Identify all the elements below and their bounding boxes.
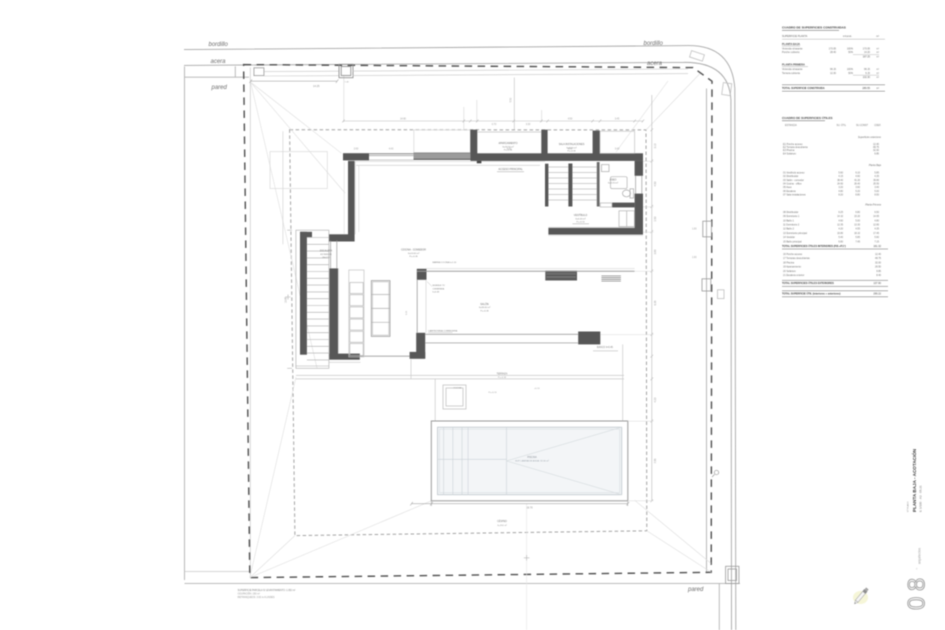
svg-text:m²: m² <box>876 87 879 90</box>
svg-text:18 Piscina: 18 Piscina <box>783 261 795 264</box>
svg-text:3.10: 3.10 <box>654 143 657 148</box>
svg-text:Vivienda s/rasante: Vivienda s/rasante <box>782 47 803 50</box>
svg-text:1.00: 1.00 <box>692 229 697 231</box>
svg-text:16 Porche acceso: 16 Porche acceso <box>783 253 803 256</box>
svg-text:E4 Solárium: E4 Solárium <box>783 152 796 155</box>
svg-text:TOTAL SUPERFICIES ÚTILES INTER: TOTAL SUPERFICIES ÚTILES INTERIORES (P.B… <box>782 244 846 248</box>
svg-text:5.00: 5.00 <box>856 220 861 222</box>
svg-text:Porche cubierto: Porche cubierto <box>782 51 800 54</box>
svg-text:9.85: 9.85 <box>876 270 881 273</box>
svg-text:bordillo: bordillo <box>209 42 229 48</box>
svg-text:09 Dormitorio 1: 09 Dormitorio 1 <box>783 215 800 218</box>
svg-text:17 Terrazas descubiertas: 17 Terrazas descubiertas <box>783 257 810 260</box>
svg-text:CUADRO DE SUPERFICIES ÚTILES: CUADRO DE SUPERFICIES ÚTILES <box>782 115 833 120</box>
svg-text:11 Dormitorio 2: 11 Dormitorio 2 <box>783 224 800 227</box>
svg-text:1.00: 1.00 <box>692 257 697 259</box>
svg-text:12.30: 12.30 <box>830 72 837 75</box>
svg-text:4.15: 4.15 <box>839 176 844 178</box>
svg-text:CARPINTERÍA CORREDERA: CARPINTERÍA CORREDERA <box>428 330 458 333</box>
svg-text:24.60: 24.60 <box>837 184 843 186</box>
svg-text:P=+0.45: P=+0.45 <box>409 256 418 258</box>
svg-text:06 Escalera: 06 Escalera <box>783 190 796 193</box>
svg-text:05 Aseo: 05 Aseo <box>783 186 792 189</box>
svg-text:6.80: 6.80 <box>856 212 861 214</box>
svg-text:Nº PLANO: Nº PLANO <box>907 501 910 512</box>
svg-text:ESCALERA: ESCALERA <box>320 250 333 253</box>
svg-text:4.43: 4.43 <box>389 149 394 151</box>
svg-text:14.65: 14.65 <box>873 216 879 218</box>
svg-text:14.20: 14.20 <box>864 51 871 54</box>
svg-text:3.90: 3.90 <box>654 249 657 254</box>
svg-text:9.85: 9.85 <box>874 152 879 155</box>
svg-text:13 Dormitorio principal: 13 Dormitorio principal <box>783 232 807 235</box>
svg-text:5.85: 5.85 <box>875 172 880 174</box>
svg-text:m²: m² <box>876 76 879 79</box>
svg-text:SU. ÚTIL: SU. ÚTIL <box>837 124 847 127</box>
svg-text:289.55: 289.55 <box>862 87 870 90</box>
svg-text:299.22: 299.22 <box>873 292 881 295</box>
svg-text:17.45: 17.45 <box>873 233 879 235</box>
svg-text:pared: pared <box>687 587 704 593</box>
svg-text:m²: m² <box>876 47 879 50</box>
svg-text:VESTÍBULO: VESTÍBULO <box>574 214 588 217</box>
svg-text:PLANTA BAJA - ACOTACIÓN: PLANTA BAJA - ACOTACIÓN <box>910 448 917 512</box>
svg-text:PISCINA: PISCINA <box>527 456 537 459</box>
svg-text:P=+0.45: P=+0.45 <box>480 310 489 312</box>
svg-text:TOTAL SUPERFICIE ÚTIL (interio: TOTAL SUPERFICIE ÚTIL (interiores + exte… <box>782 292 841 295</box>
svg-text:SU.CONST: SU.CONST <box>856 125 868 127</box>
svg-text:19.70: 19.70 <box>526 506 533 509</box>
svg-text:173.05: 173.05 <box>863 47 871 50</box>
svg-text:S=260 m²: S=260 m² <box>497 524 507 527</box>
svg-text:P=+0.15: P=+0.15 <box>488 392 497 394</box>
svg-text:6.42: 6.42 <box>507 149 512 151</box>
svg-text:2.50: 2.50 <box>654 216 657 221</box>
svg-text:CUADRO DE SUPERFICIES CONSTRUI: CUADRO DE SUPERFICIES CONSTRUIDAS <box>782 26 846 30</box>
svg-text:SALA INSTALACIONES: SALA INSTALACIONES <box>559 143 585 146</box>
svg-text:4.20: 4.20 <box>839 229 844 231</box>
svg-text:6.50: 6.50 <box>875 212 880 214</box>
svg-text:96.15: 96.15 <box>830 68 837 71</box>
svg-text:SUP. LÁMINA DE AGUA: 32.00 m²: SUP. LÁMINA DE AGUA: 32.00 m² <box>515 460 549 463</box>
svg-text:14.25: 14.25 <box>313 84 320 88</box>
svg-text:ASEO: ASEO <box>610 178 617 181</box>
svg-text:pared: pared <box>211 85 228 91</box>
svg-text:COCINA - COMEDOR: COCINA - COMEDOR <box>401 248 426 251</box>
svg-text:m²: m² <box>876 56 879 59</box>
svg-text:P=+0.10: P=+0.10 <box>576 221 585 223</box>
svg-text:187.25: 187.25 <box>863 56 871 59</box>
svg-text:39.80: 39.80 <box>873 180 879 182</box>
svg-text:bordillo: bordillo <box>644 41 664 47</box>
svg-text:01 Vestíbulo acceso: 01 Vestíbulo acceso <box>783 171 805 174</box>
svg-text:CÉSPED: CÉSPED <box>497 520 507 523</box>
svg-text:SUPERFICIE PARCELA S/ LEVANTAM: SUPERFICIE PARCELA S/ LEVANTAMIENTO: 1.0… <box>238 589 296 592</box>
svg-text:161.32: 161.32 <box>873 245 881 248</box>
svg-text:13.30: 13.30 <box>854 225 860 227</box>
svg-text:BARRA COCINA h=1.10: BARRA COCINA h=1.10 <box>433 261 458 264</box>
svg-text:02 Distribuidor: 02 Distribuidor <box>783 175 799 178</box>
svg-text:4.35: 4.35 <box>875 229 880 231</box>
svg-text:+0.15: +0.15 <box>534 388 540 390</box>
svg-text:OCUPACIÓN: 230 m²: OCUPACIÓN: 230 m² <box>238 592 260 595</box>
svg-text:TOTAL SUPERFICIE CONSTRUIDA: TOTAL SUPERFICIE CONSTRUIDA <box>782 86 825 90</box>
svg-text:0.70: 0.70 <box>492 124 497 126</box>
svg-text:m²: m² <box>876 68 879 71</box>
svg-text:173.05: 173.05 <box>829 47 837 50</box>
svg-text:20 Solárium: 20 Solárium <box>783 270 796 273</box>
svg-text:P=+0.30: P=+0.30 <box>498 377 507 379</box>
svg-text:5.40: 5.40 <box>839 237 844 239</box>
svg-text:Planta Baja: Planta Baja <box>869 164 882 167</box>
svg-text:7.45: 7.45 <box>856 241 861 243</box>
svg-text:07 Sala instalaciones: 07 Sala instalaciones <box>783 194 806 197</box>
svg-text:08 Distribuidor: 08 Distribuidor <box>783 211 799 214</box>
svg-text:3.43: 3.43 <box>615 149 620 151</box>
svg-text:3.45: 3.45 <box>615 118 620 120</box>
svg-text:12.40: 12.40 <box>875 253 882 256</box>
svg-text:5.85: 5.85 <box>856 237 861 239</box>
svg-text:4.35: 4.35 <box>875 176 880 178</box>
svg-text:m²const.: m²const. <box>843 35 853 38</box>
svg-text:7.15: 7.15 <box>875 241 880 243</box>
svg-text:SUPERFICIE PLANTA: SUPERFICIE PLANTA <box>782 35 808 38</box>
svg-text:12.35: 12.35 <box>837 225 843 227</box>
svg-text:4.55: 4.55 <box>856 229 861 231</box>
svg-text:6.35: 6.35 <box>654 300 657 305</box>
svg-text:04 Cocina - office: 04 Cocina - office <box>783 183 802 186</box>
svg-text:PLANTA PRIMERA: PLANTA PRIMERA <box>782 63 805 67</box>
svg-text:P=+0.00: P=+0.00 <box>567 151 576 153</box>
svg-text:6.15: 6.15 <box>865 72 870 75</box>
svg-text:5.60: 5.60 <box>875 237 880 239</box>
svg-text:4.50: 4.50 <box>568 118 573 120</box>
svg-text:6.10: 6.10 <box>856 172 861 174</box>
svg-text:CHIMENEA: CHIMENEA <box>433 287 445 290</box>
svg-text:15.20: 15.20 <box>854 216 860 218</box>
svg-text:15 Baño principal: 15 Baño principal <box>783 240 802 243</box>
svg-text:S=6.40 m²: S=6.40 m² <box>575 217 585 220</box>
svg-text:03 Salón - comedor: 03 Salón - comedor <box>783 179 804 182</box>
svg-text:4.60: 4.60 <box>856 176 861 178</box>
svg-text:4.80: 4.80 <box>875 220 880 222</box>
svg-text:8.40: 8.40 <box>876 274 881 277</box>
svg-text:26.40: 26.40 <box>854 184 860 186</box>
svg-text:Planta Primera: Planta Primera <box>865 203 881 206</box>
svg-text:SALÓN: SALÓN <box>480 303 489 306</box>
svg-text:S=38.40 m²: S=38.40 m² <box>479 306 491 309</box>
svg-text:Vivienda s/rasante: Vivienda s/rasante <box>782 68 803 71</box>
svg-text:21 Escalera exterior: 21 Escalera exterior <box>783 274 804 277</box>
svg-text:14 Vestidor: 14 Vestidor <box>783 236 795 239</box>
svg-text:acera: acera <box>647 61 663 67</box>
svg-text:m²: m² <box>876 51 879 54</box>
svg-text:32.00: 32.00 <box>875 261 882 264</box>
svg-text:Superficies exteriores: Superficies exteriores <box>858 136 882 139</box>
svg-text:3.20: 3.20 <box>839 187 844 189</box>
svg-text:7.95: 7.95 <box>654 458 657 463</box>
svg-text:EXTERIOR: EXTERIOR <box>320 254 332 256</box>
svg-text:S=3.20 m²: S=3.20 m² <box>608 182 618 185</box>
svg-text:m²: m² <box>876 35 879 38</box>
svg-text:4.20: 4.20 <box>654 397 657 402</box>
svg-text:28.40: 28.40 <box>830 51 837 54</box>
svg-text:Terraza cubierta: Terraza cubierta <box>782 72 801 75</box>
svg-text:100%: 100% <box>847 68 854 71</box>
svg-text:4.50: 4.50 <box>654 181 657 186</box>
svg-text:COEF.: COEF. <box>874 125 881 127</box>
svg-text:PLANTA BAJA: PLANTA BAJA <box>782 42 800 46</box>
svg-text:TOTAL SUPERFICIES ÚTILES EXTER: TOTAL SUPERFICIES ÚTILES EXTERIORES <box>782 282 834 285</box>
svg-text:26.50: 26.50 <box>875 266 882 269</box>
svg-text:DUCHA: DUCHA <box>454 386 462 389</box>
svg-text:16.80: 16.80 <box>837 233 843 235</box>
svg-text:2.60: 2.60 <box>354 149 359 151</box>
svg-text:6.90: 6.90 <box>839 241 844 243</box>
svg-text:8.20: 8.20 <box>839 195 844 197</box>
svg-text:18x17.5: 18x17.5 <box>322 257 331 259</box>
svg-text:12 Baño 2: 12 Baño 2 <box>783 228 795 231</box>
svg-text:4.60: 4.60 <box>839 220 844 222</box>
svg-text:10 Baño 1: 10 Baño 1 <box>783 219 795 222</box>
svg-text:12.80: 12.80 <box>873 225 879 227</box>
svg-text:acera: acera <box>211 59 227 65</box>
svg-text:25.50: 25.50 <box>873 184 879 186</box>
svg-text:102.30: 102.30 <box>863 76 871 79</box>
svg-text:arquitectos: arquitectos <box>918 548 922 564</box>
svg-text:14.10: 14.10 <box>837 216 843 218</box>
svg-text:38.40: 38.40 <box>837 180 843 182</box>
svg-text:96.15: 96.15 <box>864 68 871 71</box>
svg-text:137.90: 137.90 <box>873 282 881 285</box>
svg-text:5.00: 5.00 <box>875 191 880 193</box>
svg-text:08: 08 <box>904 572 931 610</box>
svg-text:4.80: 4.80 <box>839 191 844 193</box>
svg-text:6.25: 6.25 <box>839 212 844 214</box>
svg-text:E 1/100 · A3 · 05.21: E 1/100 · A3 · 05.21 <box>919 485 923 512</box>
svg-text:100%: 100% <box>847 47 854 50</box>
svg-text:ESTANCIA: ESTANCIA <box>785 124 797 127</box>
svg-text:3.60: 3.60 <box>856 187 861 189</box>
svg-text:13.80: 13.80 <box>285 296 288 303</box>
svg-text:19 Aparcamiento: 19 Aparcamiento <box>783 266 802 269</box>
svg-text:14.60: 14.60 <box>400 118 406 120</box>
svg-text:MUEBLE TV: MUEBLE TV <box>433 285 446 287</box>
svg-text:4.84: 4.84 <box>568 149 573 151</box>
svg-text:5.60: 5.60 <box>839 172 844 174</box>
svg-text:8.80: 8.80 <box>856 195 861 197</box>
svg-text:5.20: 5.20 <box>856 191 861 193</box>
svg-text:18.10: 18.10 <box>854 233 860 235</box>
svg-text:m²: m² <box>876 72 879 75</box>
svg-text:h=0.45: h=0.45 <box>433 291 441 293</box>
svg-text:3.30: 3.30 <box>526 124 531 126</box>
svg-text:APARCAMIENTO: APARCAMIENTO <box>499 142 518 145</box>
svg-text:8.50: 8.50 <box>875 195 880 197</box>
svg-text:BANCO h=0.45: BANCO h=0.45 <box>597 346 614 349</box>
svg-text:5.50: 5.50 <box>511 97 513 102</box>
svg-text:TERRAZA: TERRAZA <box>497 373 508 376</box>
svg-text:RETRANQUEOS: 3.00 m A LINDES: RETRANQUEOS: 3.00 m A LINDES <box>238 596 275 599</box>
svg-text:3.40: 3.40 <box>875 187 880 189</box>
svg-text:ACCESO PRINCIPAL: ACCESO PRINCIPAL <box>498 168 523 171</box>
svg-text:S=24.60 m²: S=24.60 m² <box>408 252 420 255</box>
svg-text:41.20: 41.20 <box>854 180 860 182</box>
svg-text:48.75: 48.75 <box>875 257 882 260</box>
